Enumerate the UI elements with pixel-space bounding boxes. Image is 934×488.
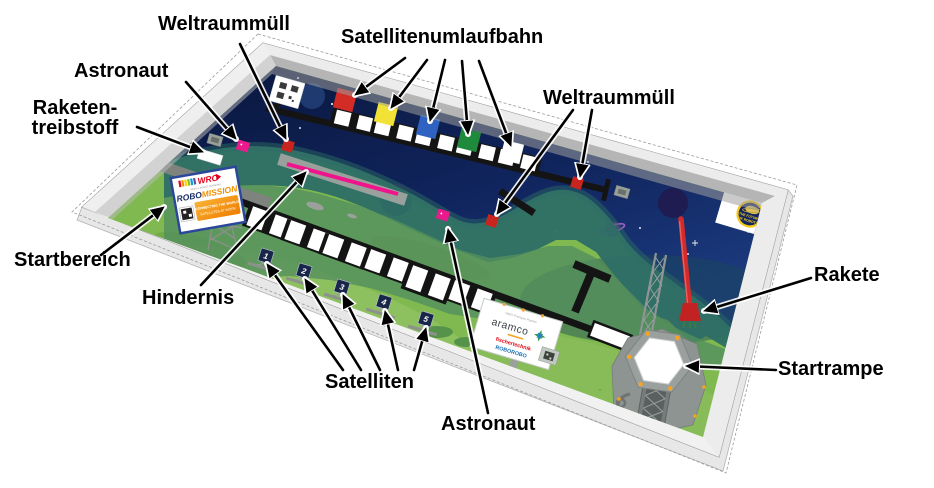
label-astronaut-bottom: Astronaut [441, 414, 535, 434]
label-hindernis: Hindernis [142, 288, 234, 308]
planet [658, 188, 688, 218]
label-astronaut-top: Astronaut [74, 61, 168, 81]
label-satellitenumlaufbahn: Satellitenumlaufbahn [341, 27, 543, 47]
start-card: WRO WORLD ROBOT OLYMPIAD ROBOMISSION CON… [171, 167, 246, 234]
label-satelliten: Satelliten [325, 372, 414, 392]
label-weltraummuell-top: Weltraummüll [158, 14, 290, 34]
label-raketentreibstoff: Raketen- treibstoff [15, 98, 135, 138]
label-startrampe: Startrampe [778, 359, 884, 379]
label-rakete: Rakete [814, 265, 880, 285]
label-raketentreibstoff-line1: Raketen- [15, 98, 135, 118]
label-startbereich: Startbereich [14, 250, 131, 270]
wro-field-diagram: 1 2 3 4 [0, 0, 934, 488]
label-weltraummuell-right: Weltraummüll [543, 88, 675, 108]
card-qr-code [179, 206, 195, 222]
label-raketentreibstoff-line2: treibstoff [15, 118, 135, 138]
